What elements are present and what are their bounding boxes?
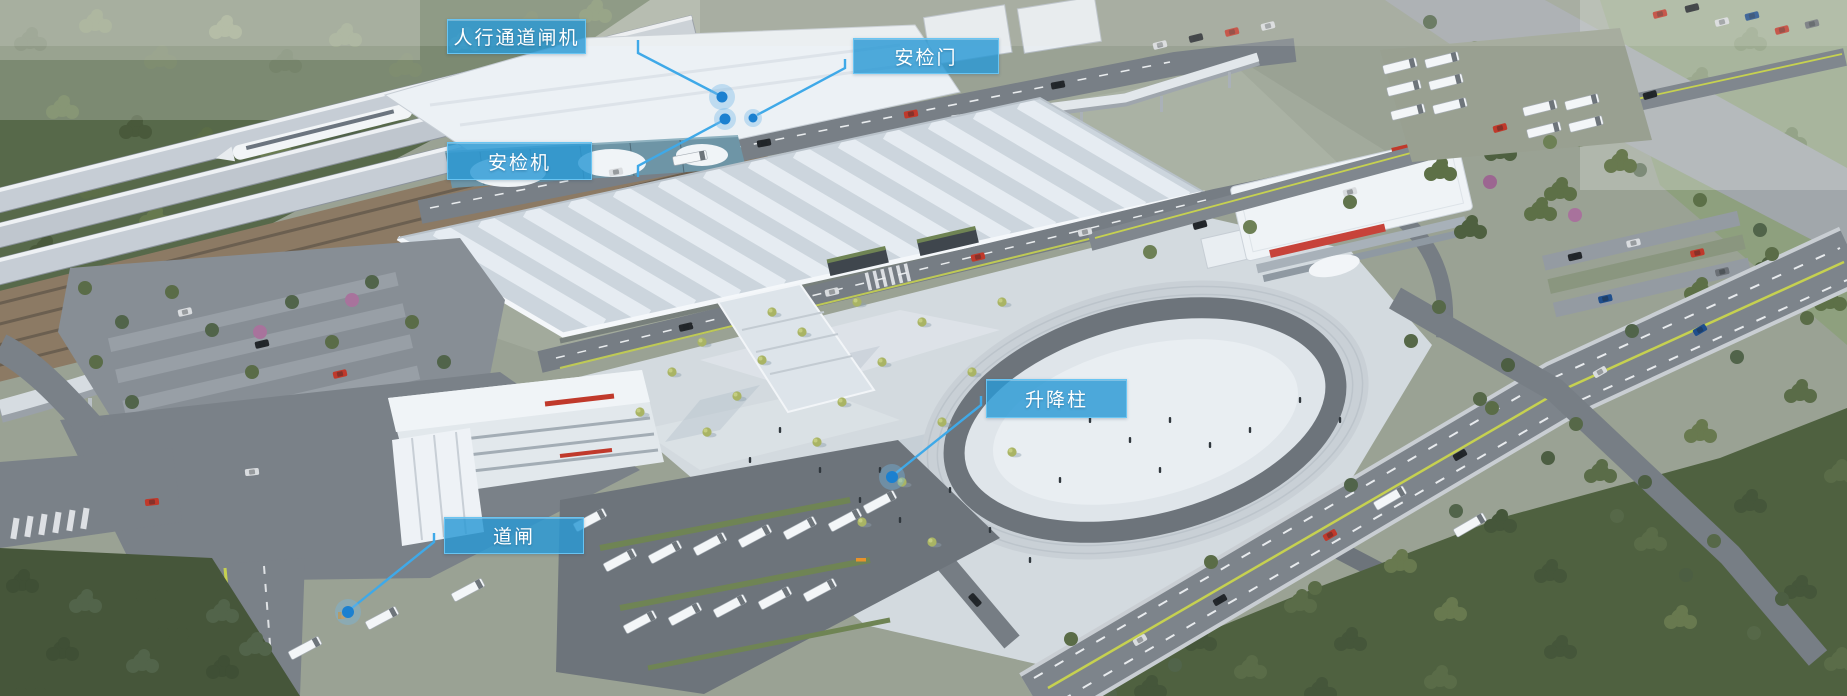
marker-dot-security-scanner xyxy=(720,114,731,125)
leader-line-pedestrian-gate xyxy=(638,40,719,95)
callout-security-scanner: 安检机 xyxy=(447,142,592,180)
callout-lifting-bollard-label: 升降柱 xyxy=(1025,385,1088,412)
annotation-overlay xyxy=(0,0,1847,696)
callout-barrier-gate: 道闸 xyxy=(444,517,584,554)
marker-dot-lifting-bollard xyxy=(886,471,898,483)
markers xyxy=(335,84,905,625)
callout-barrier-gate-label: 道闸 xyxy=(493,522,535,549)
callout-pedestrian-gate: 人行通道闸机 xyxy=(447,19,586,54)
leader-line-lifting-bollard xyxy=(896,396,981,473)
callout-lifting-bollard: 升降柱 xyxy=(986,379,1127,418)
marker-dot-pedestrian-gate xyxy=(717,92,728,103)
callout-security-scanner-label: 安检机 xyxy=(488,148,551,175)
callout-pedestrian-gate-label: 人行通道闸机 xyxy=(453,23,579,50)
marker-dot-security-door xyxy=(749,114,758,123)
marker-dot-barrier-gate xyxy=(342,606,354,618)
leader-line-barrier-gate xyxy=(352,533,434,608)
callout-security-door-label: 安检门 xyxy=(894,43,957,70)
station-aerial-render: 人行通道闸机 安检门 安检机 升降柱 道闸 xyxy=(0,0,1847,696)
callout-security-door: 安检门 xyxy=(853,38,999,74)
leader-line-security-door xyxy=(757,59,845,115)
leader-line-security-scanner xyxy=(638,121,722,177)
